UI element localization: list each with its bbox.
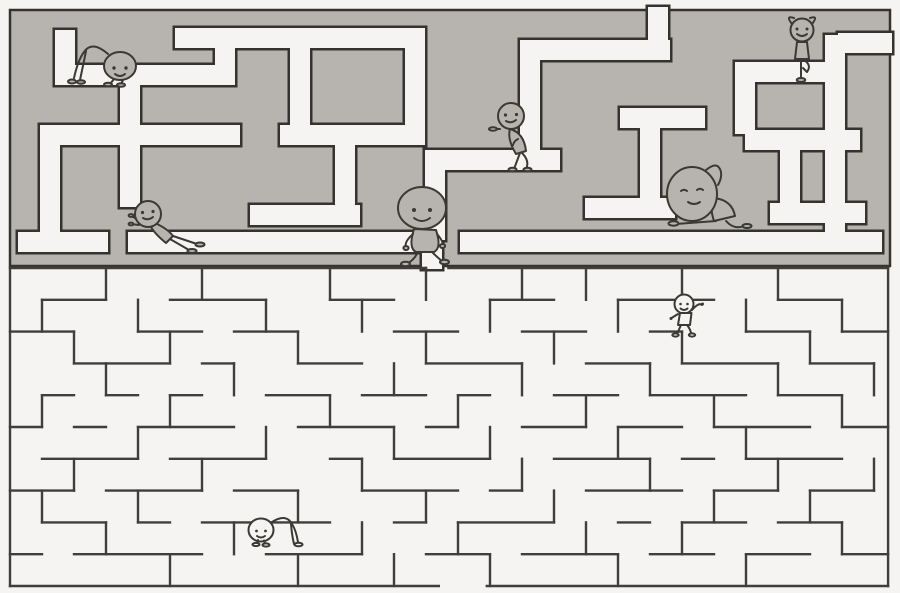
corridor — [175, 28, 425, 48]
corridor — [780, 150, 800, 205]
corridor — [735, 62, 845, 82]
corridor — [770, 203, 865, 223]
corridor — [405, 48, 425, 135]
corridor — [120, 145, 140, 207]
corridor — [620, 108, 705, 128]
corridor — [215, 48, 235, 85]
top-maze — [10, 5, 895, 272]
corridor — [425, 150, 560, 170]
corridor — [640, 128, 660, 208]
corridor — [520, 40, 670, 60]
corridor — [290, 48, 310, 135]
corridor — [838, 33, 892, 53]
corridor — [585, 198, 675, 218]
maze-scene-svg — [0, 0, 900, 593]
corridor — [18, 232, 108, 252]
corridor — [735, 82, 755, 134]
corridor — [335, 145, 355, 215]
corridor — [460, 232, 882, 252]
corridor — [40, 125, 240, 145]
maze-illustration — [0, 0, 900, 593]
